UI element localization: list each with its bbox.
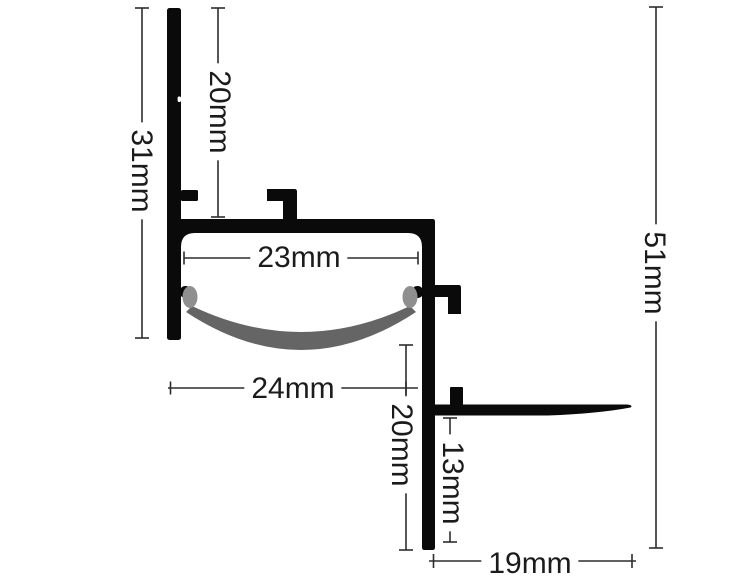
profile-left-tab [181, 190, 198, 201]
dimension-label-23mm: 23mm [250, 241, 347, 275]
dimension-label-51mm: 51mm [637, 224, 671, 321]
dimension-label-13mm: 13mm [435, 434, 469, 531]
dimension-label-24mm: 24mm [244, 372, 341, 406]
dimension-label-19mm: 19mm [481, 547, 578, 581]
profile-flange-notch [450, 387, 463, 405]
profile-flange [435, 405, 631, 416]
lens-clip-left [183, 286, 198, 308]
dimension-label-20mm-top: 20mm [202, 63, 236, 160]
dimension-label-20mm-bottom: 20mm [384, 396, 418, 493]
lens-clip-right [403, 286, 418, 308]
profile-middle-hook [267, 189, 297, 220]
profile-left-wall [167, 8, 181, 340]
drawing-canvas: 20mm 31mm 23mm 24mm 20mm 13mm 19mm 51mm [0, 0, 756, 581]
profile-right-hook [435, 285, 461, 314]
dimension-label-31mm: 31mm [124, 122, 158, 219]
lens-arc [186, 306, 416, 350]
diffuser-lens [183, 286, 418, 350]
wall-score-mark [178, 97, 181, 103]
